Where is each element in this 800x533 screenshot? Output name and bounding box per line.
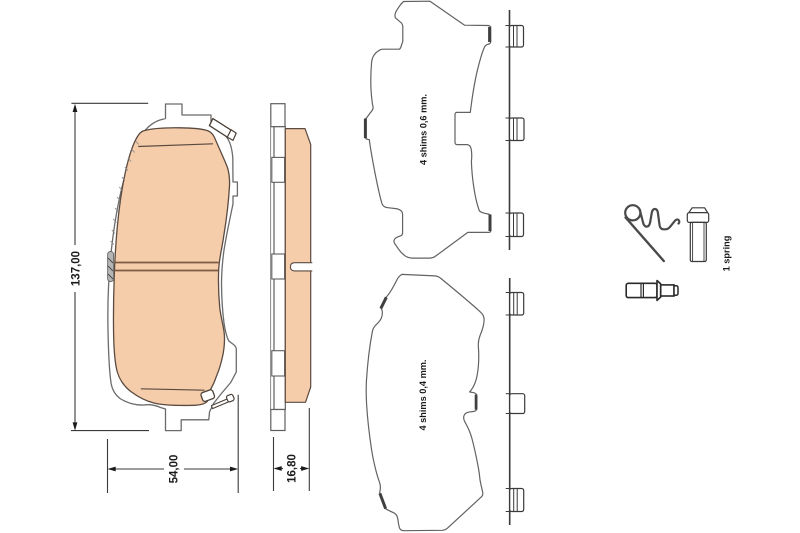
svg-text:1 spring: 1 spring bbox=[721, 236, 731, 272]
svg-text:4 shims 0,4 mm.: 4 shims 0,4 mm. bbox=[418, 360, 428, 431]
svg-text:4 shims 0,6 mm.: 4 shims 0,6 mm. bbox=[419, 94, 429, 165]
svg-text:16,80: 16,80 bbox=[286, 454, 298, 483]
svg-text:137,00: 137,00 bbox=[71, 251, 83, 286]
svg-text:54,00: 54,00 bbox=[169, 455, 181, 484]
